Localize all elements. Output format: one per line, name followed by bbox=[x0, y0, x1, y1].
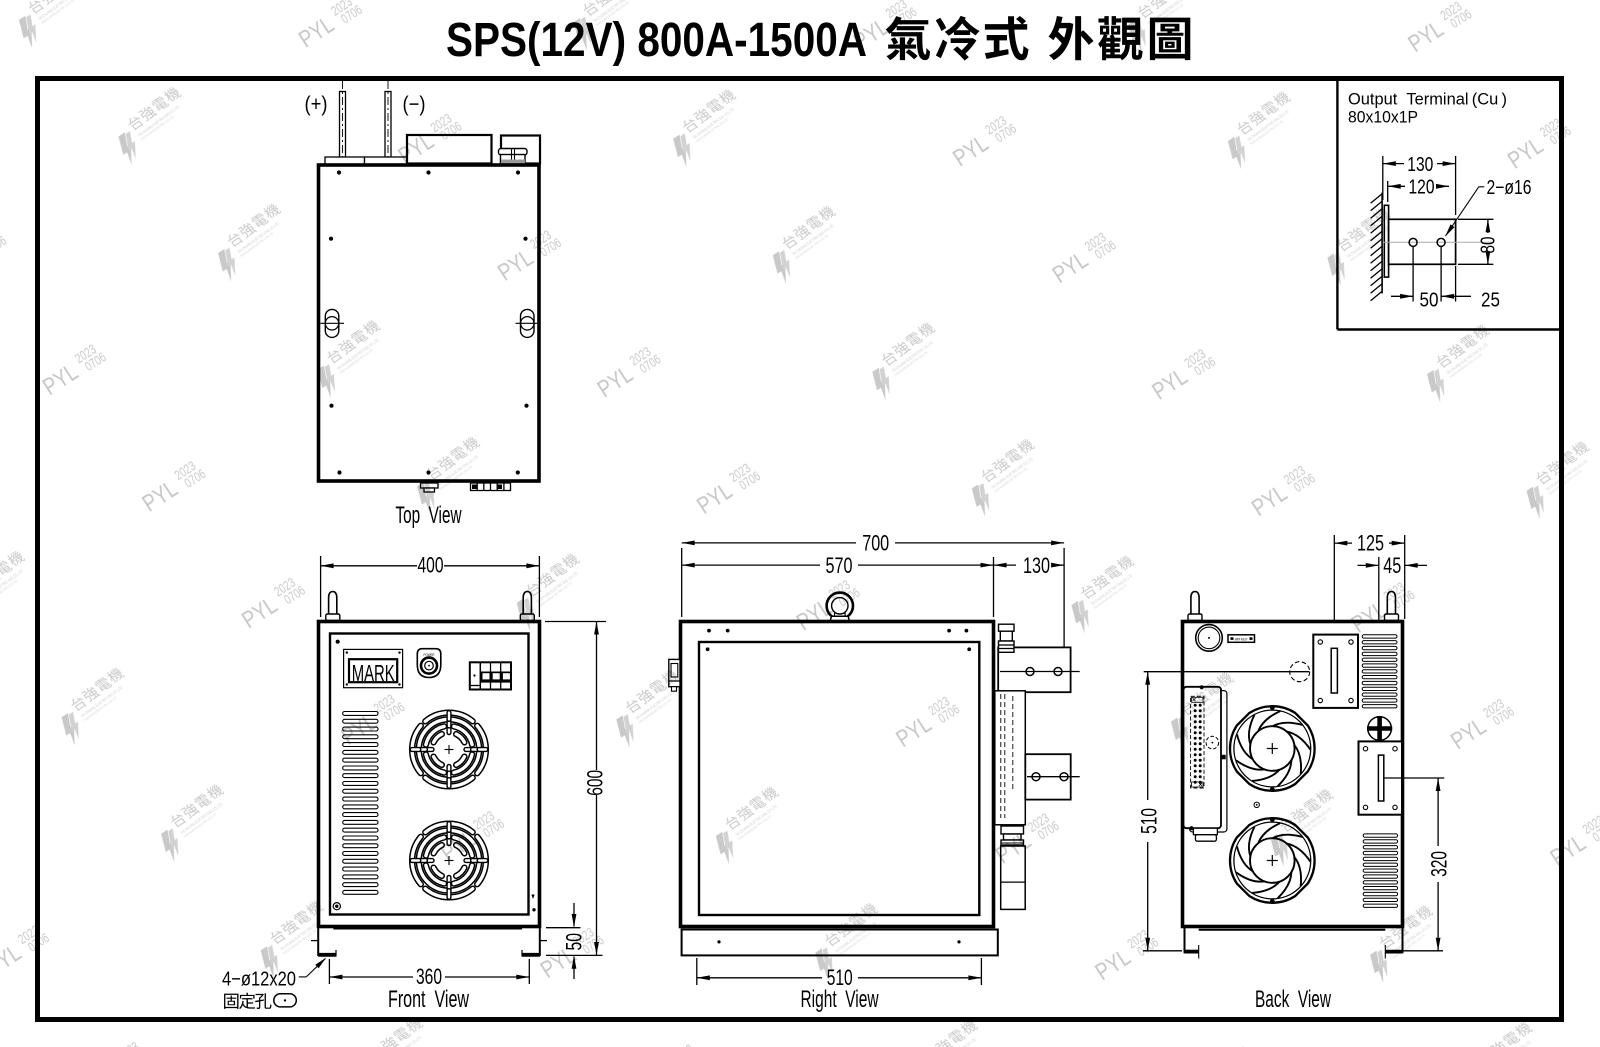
svg-text:(−): (−) bbox=[403, 93, 426, 116]
svg-text:SPS(12V) 800A-1500A: SPS(12V) 800A-1500A bbox=[446, 13, 867, 67]
svg-text:130: 130 bbox=[1023, 553, 1050, 578]
svg-text:125: 125 bbox=[1357, 531, 1384, 556]
svg-text:4−ø12x20: 4−ø12x20 bbox=[222, 968, 296, 990]
svg-text:80x10x1P: 80x10x1P bbox=[1348, 108, 1418, 127]
svg-text:400: 400 bbox=[418, 553, 444, 578]
svg-text:80: 80 bbox=[1476, 237, 1499, 254]
svg-text:120: 120 bbox=[1409, 176, 1435, 199]
svg-text:Right View: Right View bbox=[801, 986, 879, 1013]
svg-text:MARK: MARK bbox=[352, 660, 395, 686]
svg-text:Output Terminal (Cu ): Output Terminal (Cu ) bbox=[1348, 90, 1507, 109]
svg-text:50: 50 bbox=[1420, 288, 1439, 311]
svg-text:45: 45 bbox=[1383, 553, 1401, 578]
svg-text:25: 25 bbox=[1481, 288, 1500, 311]
svg-text:POWER: POWER bbox=[424, 652, 435, 657]
svg-text:Front View: Front View bbox=[388, 986, 469, 1013]
svg-text:510: 510 bbox=[1136, 808, 1161, 834]
svg-text:700: 700 bbox=[862, 531, 889, 556]
svg-text:320: 320 bbox=[1427, 851, 1452, 877]
svg-text:MRF ASSY: MRF ASSY bbox=[1235, 637, 1248, 642]
svg-text:130: 130 bbox=[1407, 153, 1433, 176]
svg-text:Back View: Back View bbox=[1255, 986, 1331, 1013]
svg-text:600: 600 bbox=[583, 770, 608, 796]
svg-text:570: 570 bbox=[826, 553, 853, 578]
svg-text:(+): (+) bbox=[305, 93, 328, 116]
svg-text:2−ø16: 2−ø16 bbox=[1487, 177, 1532, 199]
